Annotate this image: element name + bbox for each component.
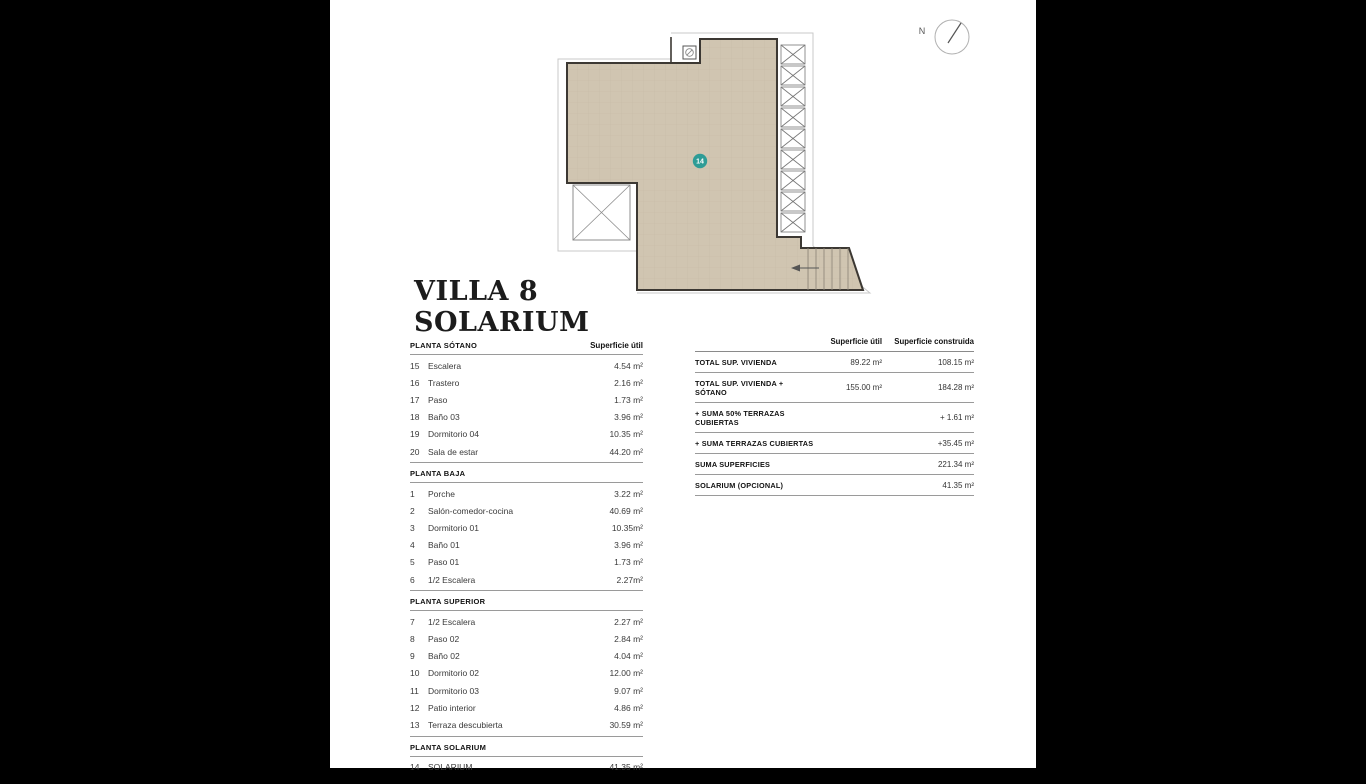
pergola-box: [781, 87, 805, 106]
row-value: 2.27 m²: [614, 617, 643, 627]
table-row: 16Trastero2.16 m²: [410, 374, 643, 391]
table-row: 2Salón-comedor-cocina40.69 m²: [410, 502, 643, 519]
summary-util-value: 155.00 m²: [814, 383, 882, 392]
compass-icon: N: [919, 20, 969, 54]
section-planta-solarium: PLANTA SOLARIUM 14SOLARIUM41.35 m²: [410, 743, 643, 778]
row-number: 9: [410, 651, 428, 661]
page-title-line1: VILLA 8: [414, 276, 589, 307]
paper: 14 N VILLA 8 SOLARIUM PLANTA SÓTANO Supe…: [330, 0, 1036, 768]
north-label: N: [919, 26, 926, 36]
row-value: 4.54 m²: [614, 361, 643, 371]
summary-label: SOLARIUM (OPCIONAL): [695, 481, 814, 490]
patio-skylight: [573, 185, 630, 240]
row-value: 3.22 m²: [614, 489, 643, 499]
row-label: Porche: [428, 489, 614, 499]
row-number: 10: [410, 668, 428, 678]
pergola-box: [781, 192, 805, 211]
pergola-box: [781, 150, 805, 169]
row-label: Trastero: [428, 378, 614, 388]
row-value: 30.59 m²: [609, 720, 643, 730]
page-title-line2: SOLARIUM: [414, 307, 589, 338]
row-label: 1/2 Escalera: [428, 575, 617, 585]
section-heading: PLANTA BAJA: [410, 469, 465, 478]
summary-row: + SUMA TERRAZAS CUBIERTAS+35.45 m²: [695, 433, 974, 454]
row-number: 20: [410, 447, 428, 457]
section-planta-sotano: PLANTA SÓTANO Superficie útil 15Escalera…: [410, 341, 643, 463]
summary-row: TOTAL SUP. VIVIENDA89.22 m²108.15 m²: [695, 352, 974, 373]
table-row: 14SOLARIUM41.35 m²: [410, 759, 643, 776]
section-heading: PLANTA SOLARIUM: [410, 743, 486, 752]
table-row: 71/2 Escalera2.27 m²: [410, 613, 643, 630]
table-row: 5Paso 011.73 m²: [410, 554, 643, 571]
row-number: 17: [410, 395, 428, 405]
table-row: 8Paso 022.84 m²: [410, 630, 643, 647]
row-value: 3.96 m²: [614, 540, 643, 550]
row-number: 19: [410, 429, 428, 439]
room-badge-label: 14: [696, 159, 704, 166]
table-row: 17Paso1.73 m²: [410, 391, 643, 408]
row-number: 13: [410, 720, 428, 730]
row-label: Baño 01: [428, 540, 614, 550]
summary-row: SUMA SUPERFICIES221.34 m²: [695, 454, 974, 475]
row-value: 10.35m²: [612, 523, 643, 533]
row-number: 16: [410, 378, 428, 388]
table-row: 19Dormitorio 0410.35 m²: [410, 426, 643, 443]
pergola-box: [781, 171, 805, 190]
section-planta-baja: PLANTA BAJA 1Porche3.22 m² 2Salón-comedo…: [410, 469, 643, 591]
summary-label: + SUMA 50% TERRAZAS CUBIERTAS: [695, 409, 814, 427]
row-label: Baño 02: [428, 651, 614, 661]
row-label: Paso 01: [428, 557, 614, 567]
row-number: 3: [410, 523, 428, 533]
row-label: Dormitorio 04: [428, 429, 609, 439]
summary-header-spacer: [695, 337, 814, 346]
row-number: 7: [410, 617, 428, 627]
row-label: Salón-comedor-cocina: [428, 506, 609, 516]
row-value: 2.27m²: [617, 575, 643, 585]
summary-label: TOTAL SUP. VIVIENDA + SÓTANO: [695, 379, 814, 397]
row-value: 10.35 m²: [609, 429, 643, 439]
row-value: 44.20 m²: [609, 447, 643, 457]
summary-construida-value: + 1.61 m²: [882, 413, 974, 422]
summary-row: + SUMA 50% TERRAZAS CUBIERTAS+ 1.61 m²: [695, 403, 974, 433]
pergola-box: [781, 66, 805, 85]
section-heading: PLANTA SUPERIOR: [410, 597, 485, 606]
summary-label: SUMA SUPERFICIES: [695, 460, 814, 469]
summary-construida-value: +35.45 m²: [882, 439, 974, 448]
pergola-box: [781, 108, 805, 127]
pergola-strip: [781, 45, 805, 232]
pergola-box: [781, 129, 805, 148]
summary-label: + SUMA TERRAZAS CUBIERTAS: [695, 439, 814, 448]
table-row: 11Dormitorio 039.07 m²: [410, 682, 643, 699]
row-number: 15: [410, 361, 428, 371]
row-number: 4: [410, 540, 428, 550]
row-label: Escalera: [428, 361, 614, 371]
row-value: 40.69 m²: [609, 506, 643, 516]
row-value: 12.00 m²: [609, 668, 643, 678]
row-number: 18: [410, 412, 428, 422]
summary-construida-value: 184.28 m²: [882, 383, 974, 392]
row-value: 2.84 m²: [614, 634, 643, 644]
summary-table: Superficie útil Superficie construida TO…: [695, 337, 974, 496]
table-row: 61/2 Escalera2.27m²: [410, 571, 643, 588]
table-row: 9Baño 024.04 m²: [410, 648, 643, 665]
row-value: 2.16 m²: [614, 378, 643, 388]
row-number: 6: [410, 575, 428, 585]
table-row: 4Baño 013.96 m²: [410, 537, 643, 554]
summary-construida-value: 221.34 m²: [882, 460, 974, 469]
table-row: 10Dormitorio 0212.00 m²: [410, 665, 643, 682]
floor-plan: 14 N: [545, 15, 985, 300]
row-label: Dormitorio 03: [428, 686, 614, 696]
summary-row: SOLARIUM (OPCIONAL)41.35 m²: [695, 475, 974, 496]
row-number: 2: [410, 506, 428, 516]
row-value: 4.86 m²: [614, 703, 643, 713]
section-header: PLANTA SOLARIUM: [410, 743, 643, 757]
row-label: Paso 02: [428, 634, 614, 644]
row-number: 1: [410, 489, 428, 499]
row-number: 14: [410, 762, 428, 772]
pergola-box: [781, 45, 805, 64]
table-row: 3Dormitorio 0110.35m²: [410, 520, 643, 537]
summary-row: TOTAL SUP. VIVIENDA + SÓTANO155.00 m²184…: [695, 373, 974, 403]
row-label: Baño 03: [428, 412, 614, 422]
floor-areas-table: PLANTA SÓTANO Superficie útil 15Escalera…: [410, 341, 643, 784]
table-row: 13Terraza descubierta30.59 m²: [410, 716, 643, 733]
table-row: 1Porche3.22 m²: [410, 485, 643, 502]
section-heading: PLANTA SÓTANO: [410, 341, 477, 350]
summary-header: Superficie útil Superficie construida: [695, 337, 974, 352]
table-row: 18Baño 033.96 m²: [410, 409, 643, 426]
row-value: 4.04 m²: [614, 651, 643, 661]
row-label: Patio interior: [428, 703, 614, 713]
summary-label: TOTAL SUP. VIVIENDA: [695, 358, 814, 367]
row-number: 11: [410, 686, 428, 696]
row-value: 9.07 m²: [614, 686, 643, 696]
table-row: 12Patio interior4.86 m²: [410, 699, 643, 716]
column-header-util: Superficie útil: [590, 341, 643, 350]
section-planta-superior: PLANTA SUPERIOR 71/2 Escalera2.27 m² 8Pa…: [410, 597, 643, 736]
row-label: SOLARIUM: [428, 762, 609, 772]
row-number: 12: [410, 703, 428, 713]
tile-grid: [567, 39, 863, 290]
section-header: PLANTA SÓTANO Superficie útil: [410, 341, 643, 355]
row-label: 1/2 Escalera: [428, 617, 614, 627]
summary-col-util-header: Superficie útil: [814, 337, 882, 346]
row-value: 1.73 m²: [614, 395, 643, 405]
summary-util-value: 89.22 m²: [814, 358, 882, 367]
row-label: Paso: [428, 395, 614, 405]
page-title: VILLA 8 SOLARIUM: [414, 276, 589, 338]
row-value: 41.35 m²: [609, 762, 643, 772]
section-header: PLANTA BAJA: [410, 469, 643, 483]
row-number: 5: [410, 557, 428, 567]
summary-construida-value: 41.35 m²: [882, 481, 974, 490]
row-label: Dormitorio 02: [428, 668, 609, 678]
row-value: 1.73 m²: [614, 557, 643, 567]
row-label: Sala de estar: [428, 447, 609, 457]
row-label: Terraza descubierta: [428, 720, 609, 730]
table-row: 20Sala de estar44.20 m²: [410, 443, 643, 460]
pergola-box: [781, 213, 805, 232]
section-header: PLANTA SUPERIOR: [410, 597, 643, 611]
row-label: Dormitorio 01: [428, 523, 612, 533]
row-number: 8: [410, 634, 428, 644]
table-row: 15Escalera4.54 m²: [410, 357, 643, 374]
summary-construida-value: 108.15 m²: [882, 358, 974, 367]
summary-col-construida-header: Superficie construida: [882, 337, 974, 346]
row-value: 3.96 m²: [614, 412, 643, 422]
room-badge: 14: [693, 154, 707, 168]
